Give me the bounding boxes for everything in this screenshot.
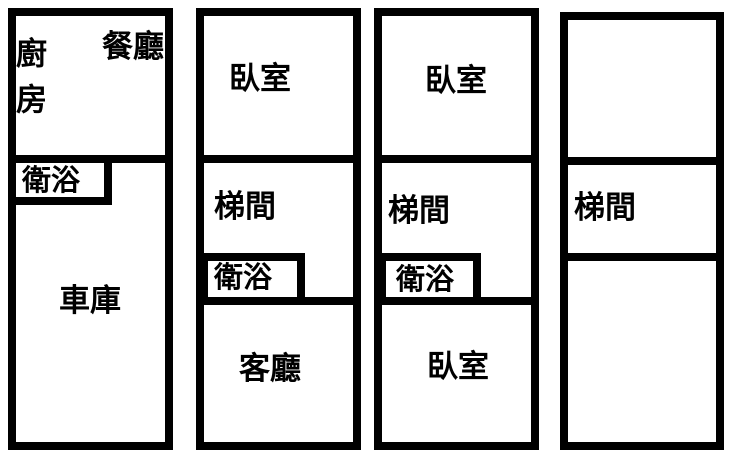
floor-plan-canvas: 廚房 餐廳 衛浴 車庫 臥室 梯間 衛浴 客廳 臥室 梯間 衛浴 臥室 梯間 [0,0,741,460]
section-1-kitchen-label: 廚房 [12,37,43,129]
section-3-lower-bedroom-label: 臥室 [427,352,489,383]
section-3-upper-bedroom-label: 臥室 [425,66,487,97]
section-1-dining-label: 餐廳 [102,32,164,63]
section-2-upper-divider-wall [196,155,361,163]
section-4-lower-divider-wall [560,253,724,261]
section-2-bathroom-label: 衛浴 [214,263,272,292]
section-3-bathroom-label: 衛浴 [396,265,454,294]
section-2-bedroom-label: 臥室 [229,64,291,95]
section-4-upper-divider-wall [560,157,724,165]
section-4-stairwell-label: 梯間 [574,193,636,224]
section-2-living-label: 客廳 [239,354,301,385]
section-2-stairwell-label: 梯間 [214,192,276,223]
section-3-stairwell-label: 梯間 [388,196,450,227]
section-4-outline [560,12,724,450]
section-1-bathroom-label: 衛浴 [22,166,80,195]
section-1-garage-label: 車庫 [59,286,121,317]
section-3-upper-divider-wall [374,155,539,163]
